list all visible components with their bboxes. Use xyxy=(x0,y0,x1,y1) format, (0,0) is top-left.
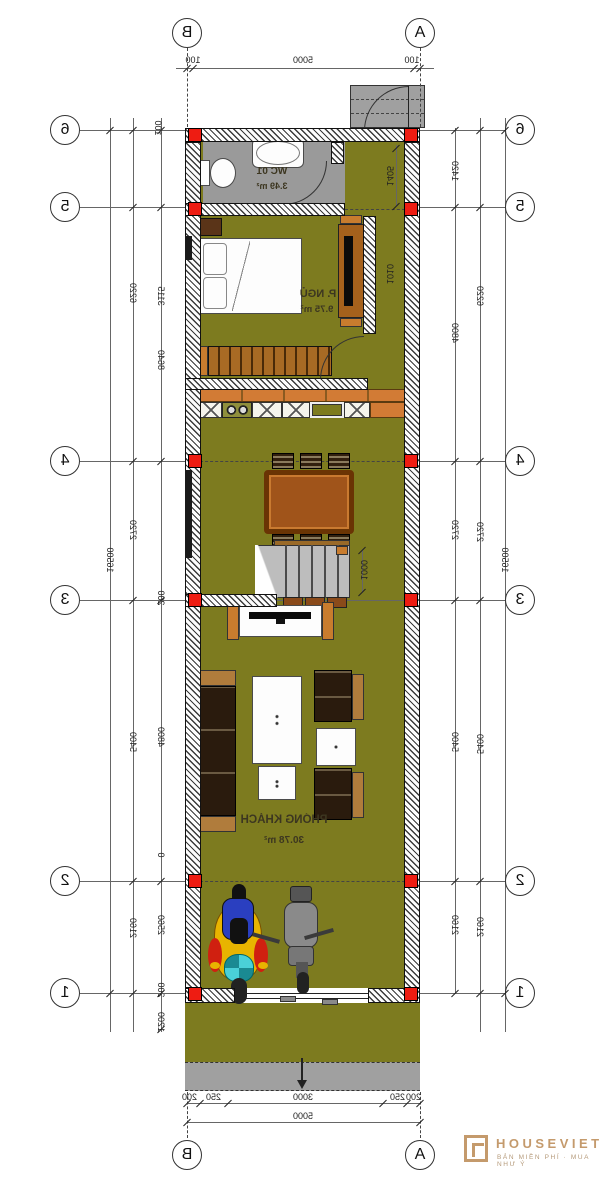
armchair xyxy=(314,768,352,820)
column-marker xyxy=(404,202,418,216)
dim-bottom-2 xyxy=(187,1122,420,1123)
gate-line xyxy=(235,993,368,994)
dim-label: 1420 xyxy=(449,154,461,188)
dim-right-mid xyxy=(480,118,481,1032)
scooter-rear-rack xyxy=(290,886,312,902)
axis-line-right xyxy=(420,600,505,601)
dim-left-mid xyxy=(133,118,134,1032)
axis-5-dash xyxy=(345,209,405,210)
dining-chair xyxy=(300,453,322,469)
grid-bubble-3-left: 3 xyxy=(50,585,80,615)
dim-label: 5000 xyxy=(288,54,318,65)
dining-chair xyxy=(272,453,294,469)
dim-label: 1405 xyxy=(384,159,396,193)
kitchen-sink xyxy=(310,402,344,418)
logo-brand: HOUSEVIET xyxy=(496,1136,600,1151)
room-label-bedroom: P. NGỦ xyxy=(288,288,348,300)
column-marker xyxy=(188,128,202,142)
wall-grid5 xyxy=(185,203,345,216)
dim-label: 100 xyxy=(403,54,421,65)
room-area-bedroom: 9.75 m² xyxy=(290,304,344,315)
dim-label: 2560 xyxy=(155,908,167,942)
wall-right xyxy=(404,142,420,988)
room-label-living: PHÒNG KHÁCH xyxy=(228,814,340,826)
column-marker xyxy=(188,454,202,468)
dim-label: 2720 xyxy=(449,513,461,547)
grid-bubble-1-right: 1 xyxy=(505,978,535,1008)
wall-top xyxy=(185,128,420,142)
grid-bubble-3-right: 3 xyxy=(505,585,535,615)
side-table xyxy=(316,728,356,766)
counter-tile xyxy=(282,402,310,418)
toilet-tank xyxy=(200,160,210,186)
grid-bubble-6-left: 6 xyxy=(50,115,80,145)
armchair xyxy=(314,670,352,722)
dim-label: 2160 xyxy=(474,910,486,944)
counter-tile xyxy=(252,402,282,418)
sportbike-seat xyxy=(230,918,248,944)
grid-bubble-a-bottom: A xyxy=(405,1140,435,1170)
grid-bubble-5-left: 5 xyxy=(50,192,80,222)
dining-table xyxy=(264,470,354,534)
dim-top xyxy=(176,68,434,69)
grid-bubble-b-bottom: B xyxy=(172,1140,202,1170)
dim-label: 4800 xyxy=(449,316,461,350)
axis-line-right xyxy=(420,130,505,131)
axis-line-right xyxy=(420,881,505,882)
nightstand xyxy=(198,218,222,236)
dim-label: 4800 xyxy=(155,720,167,754)
stove xyxy=(222,402,252,418)
wall-left xyxy=(185,142,201,988)
dim-bottom-1 xyxy=(187,1103,420,1104)
logo: HOUSEVIET BẢN MIỀN PHÍ · MUA NHƯ Ý xyxy=(462,1132,592,1172)
column-marker xyxy=(404,987,418,1001)
gate-line xyxy=(235,998,368,999)
column-marker xyxy=(188,987,202,1001)
pillow xyxy=(203,277,227,309)
wardrobe xyxy=(208,346,332,376)
dim-label: 250 xyxy=(203,1091,224,1102)
room-label-wc: WC 01 xyxy=(244,166,300,177)
entry-arrow-head xyxy=(297,1080,307,1089)
column-marker xyxy=(404,593,418,607)
dim-label: 1200 xyxy=(155,1005,167,1039)
grid-bubble-2-right: 2 xyxy=(505,866,535,896)
axis-line-right xyxy=(420,461,505,462)
dim-label: 2720 xyxy=(474,515,486,549)
sportbike-mirror xyxy=(258,962,268,969)
dining-chair xyxy=(328,453,350,469)
grid-bubble-4-left: 4 xyxy=(50,446,80,476)
armchair-post xyxy=(352,674,364,720)
grid-bubble-6-right: 6 xyxy=(505,115,535,145)
axis-line-right xyxy=(420,993,505,994)
sportbike-mirror xyxy=(210,962,220,969)
column-marker xyxy=(404,128,418,142)
window-left xyxy=(185,236,192,260)
front-yard xyxy=(185,1003,420,1062)
dim-label: 5400 xyxy=(449,725,461,759)
toilet-bowl xyxy=(210,158,236,188)
column-marker xyxy=(188,202,202,216)
wall-bedroom-right xyxy=(363,216,376,334)
dim-label: 5000 xyxy=(288,1110,318,1121)
column-marker xyxy=(188,874,202,888)
dim-label: 0 xyxy=(155,847,167,863)
wall-bedroom-bottom xyxy=(185,378,368,390)
tv-post xyxy=(227,602,239,640)
entry-arrow xyxy=(301,1058,303,1082)
grid-bubble-1-left: 1 xyxy=(50,978,80,1008)
dim-label: 3115 xyxy=(155,279,167,313)
grid-bubble-a-top: A xyxy=(405,18,435,48)
logo-tagline: BẢN MIỀN PHÍ · MUA NHƯ Ý xyxy=(497,1154,592,1168)
scooter-seat xyxy=(284,902,318,948)
dim-label: 16500 xyxy=(499,539,511,581)
dim-1405-line xyxy=(396,145,397,207)
armchair-post xyxy=(352,772,364,818)
grid-bubble-4-right: 4 xyxy=(505,446,535,476)
axis-line-right xyxy=(420,207,505,208)
cabinet-cap xyxy=(340,215,362,224)
pillow xyxy=(203,243,227,275)
cabinet-cap xyxy=(340,318,362,327)
dim-label: 6220 xyxy=(474,279,486,313)
room-area-living: 30.78 m² xyxy=(256,835,312,846)
dim-label: 100 xyxy=(184,54,202,65)
gate-handle xyxy=(322,999,338,1005)
dim-label: 1000 xyxy=(358,553,370,587)
dim-label: 2160 xyxy=(449,908,461,942)
column-marker xyxy=(188,593,202,607)
gate-handle xyxy=(280,996,296,1002)
floor-plan-drawing: B A B A 6 5 4 3 2 1 6 5 4 3 2 1 100 5000… xyxy=(0,0,600,1182)
dim-label: 3000 xyxy=(288,1091,318,1102)
column-marker xyxy=(404,454,418,468)
dim-label: 5400 xyxy=(474,727,486,761)
logo-house-icon-inner xyxy=(472,1143,484,1157)
tv-living xyxy=(249,612,311,619)
dim-label: 2720 xyxy=(127,513,139,547)
coffee-table xyxy=(252,676,302,764)
window-left xyxy=(185,470,192,558)
tv-post xyxy=(322,602,334,640)
entry-door-leaf xyxy=(408,86,409,131)
room-area-wc: 3.49 m² xyxy=(246,181,298,191)
dim-label: 1010 xyxy=(384,257,396,291)
grid-bubble-b-top: B xyxy=(172,18,202,48)
dim-label: 16500 xyxy=(104,539,116,581)
axis-2-dash xyxy=(200,881,405,882)
column-marker xyxy=(404,874,418,888)
counter-tile xyxy=(200,402,222,418)
wall-wc-right xyxy=(331,142,344,164)
dim-right-inner xyxy=(455,128,456,994)
bed-fold-line xyxy=(232,241,250,311)
dim-label: 2160 xyxy=(127,911,139,945)
grid-bubble-2-left: 2 xyxy=(50,866,80,896)
dim-left-inner xyxy=(161,118,162,1032)
counter-end xyxy=(370,402,405,418)
scooter-front-wheel xyxy=(297,972,309,994)
counter-tile xyxy=(344,402,370,418)
stair-break-cut xyxy=(255,545,287,598)
tv-stand xyxy=(276,619,285,624)
stair-post xyxy=(336,546,348,555)
dim-label: 8640 xyxy=(155,343,167,377)
dim-label: 5400 xyxy=(127,725,139,759)
kitchen-cabinets xyxy=(200,389,405,402)
dim-label: 6220 xyxy=(127,276,139,310)
small-table xyxy=(258,766,296,800)
grid-bubble-5-right: 5 xyxy=(505,192,535,222)
